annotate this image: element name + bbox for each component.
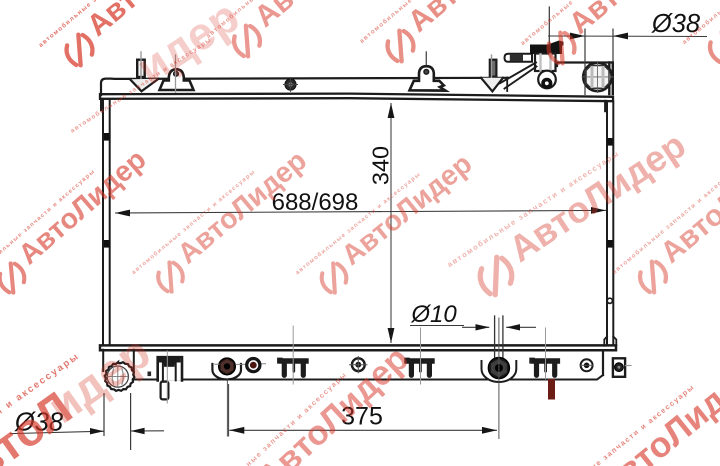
svg-text:688/698: 688/698 [272, 189, 359, 216]
svg-text:340: 340 [368, 146, 394, 185]
svg-text:Ø10: Ø10 [410, 301, 457, 328]
svg-text:идер: идер [38, 326, 160, 434]
